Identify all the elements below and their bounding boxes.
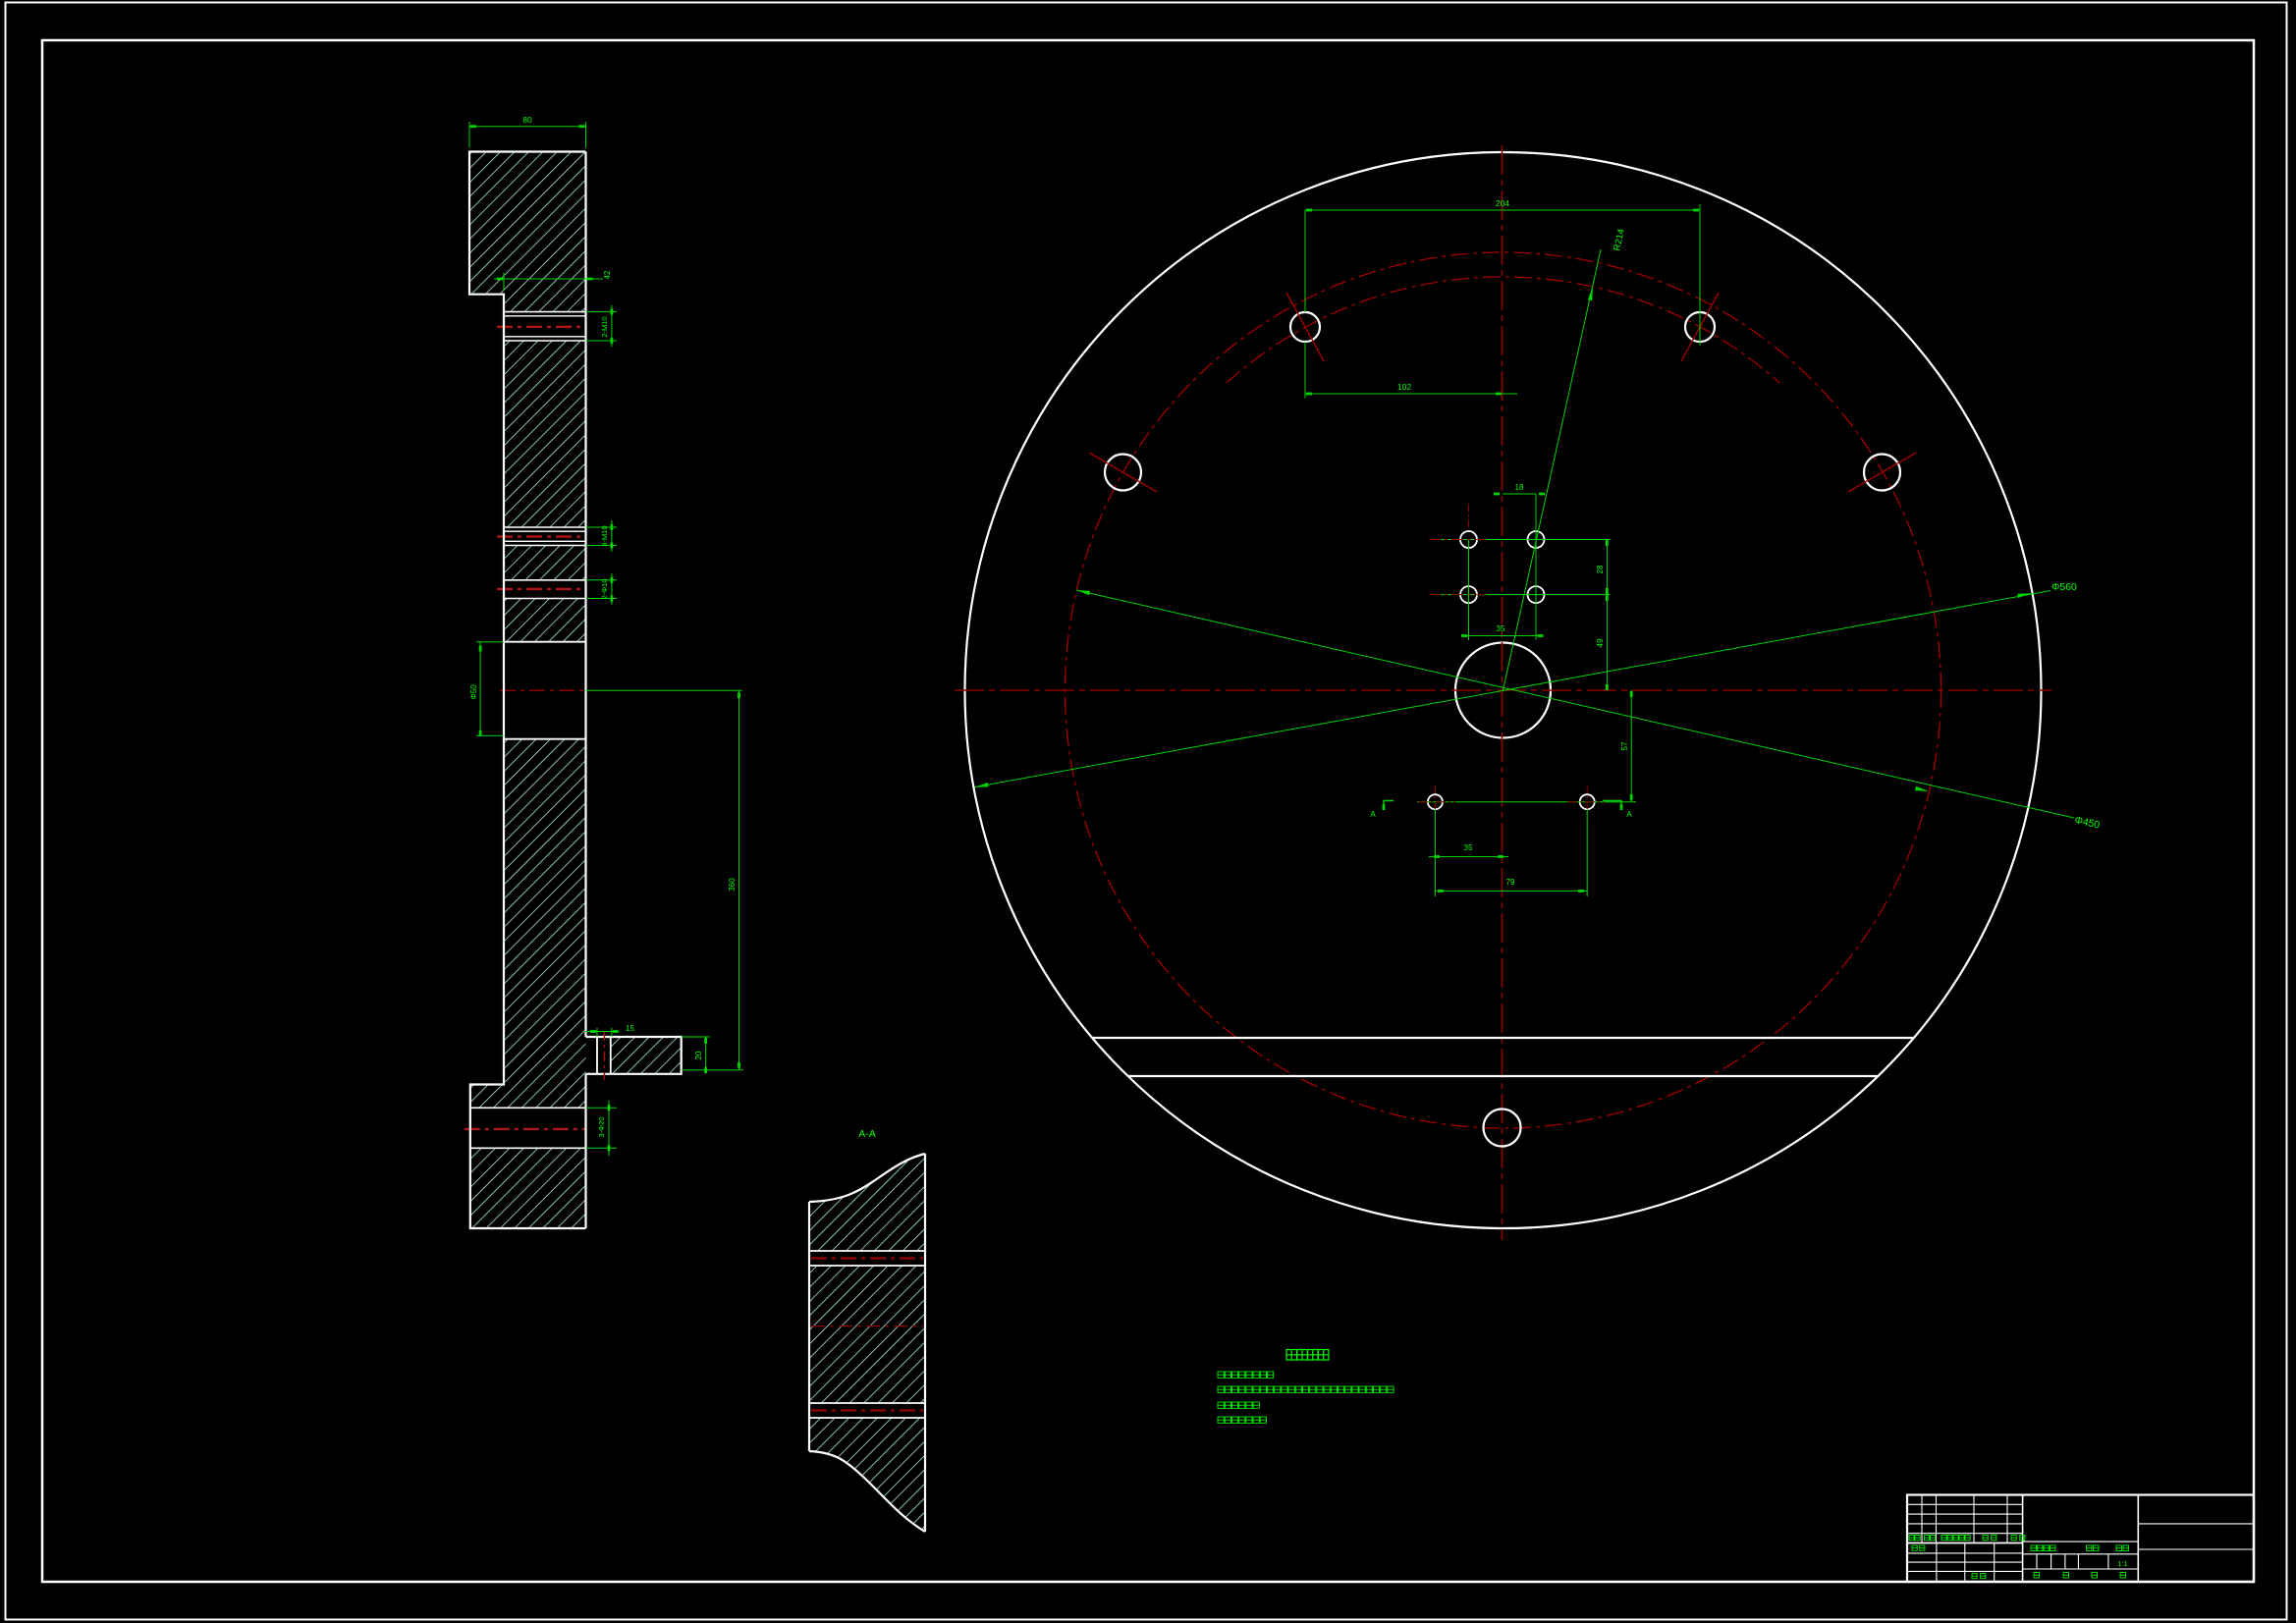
svg-text:18: 18 <box>1515 483 1524 492</box>
svg-text:8-M10: 8-M10 <box>600 525 609 546</box>
svg-text:Φ50: Φ50 <box>469 684 478 700</box>
svg-text:2-M10: 2-M10 <box>600 316 609 337</box>
svg-text:35: 35 <box>1464 843 1473 852</box>
svg-text:A: A <box>1370 810 1376 819</box>
svg-text:80: 80 <box>522 115 532 125</box>
svg-text:Φ560: Φ560 <box>2051 581 2077 593</box>
svg-text:2-Φ10: 2-Φ10 <box>600 579 609 600</box>
svg-text:79: 79 <box>1506 878 1515 887</box>
svg-text:A: A <box>1626 810 1632 819</box>
svg-text:57: 57 <box>1620 741 1629 750</box>
svg-text:42: 42 <box>603 270 612 279</box>
svg-text:49: 49 <box>1596 638 1605 647</box>
svg-text:1:1: 1:1 <box>2117 1559 2127 1568</box>
svg-text:102: 102 <box>1397 382 1411 392</box>
svg-text:3-Φ20: 3-Φ20 <box>597 1117 606 1138</box>
svg-text:20: 20 <box>694 1051 703 1059</box>
svg-text:28: 28 <box>1596 565 1605 573</box>
svg-text:A-A: A-A <box>858 1128 876 1140</box>
svg-text:35: 35 <box>1497 624 1505 633</box>
svg-text:204: 204 <box>1496 198 1509 208</box>
svg-text:360: 360 <box>728 878 737 892</box>
svg-text:15: 15 <box>626 1024 634 1033</box>
